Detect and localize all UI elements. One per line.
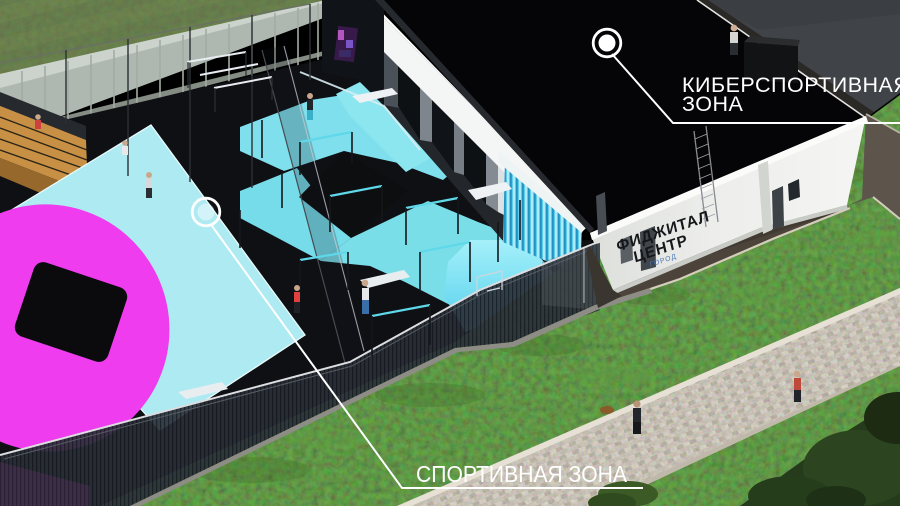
svg-text:СПОРТИВНАЯ ЗОНА: СПОРТИВНАЯ ЗОНА xyxy=(416,461,627,487)
svg-text:ЗОНА: ЗОНА xyxy=(682,92,743,116)
